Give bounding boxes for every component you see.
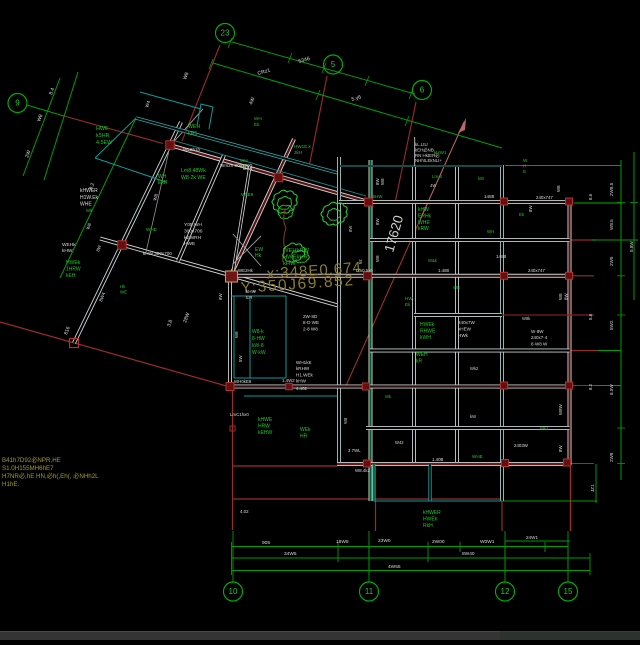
svg-text:W42: W42 — [395, 440, 404, 445]
svg-text:H1hE.: H1hE. — [2, 481, 19, 488]
svg-text:kEWRH: kEWRH — [184, 235, 202, 241]
svg-text:RkH: RkH — [423, 523, 433, 529]
svg-text:H7NR必,hE HN,必h(,Eh(, 必NHh2L: H7NR必,hE HN,必h(,Eh(, 必NHh2L — [2, 472, 99, 480]
svg-text:kRHW: kRHW — [296, 366, 310, 371]
svg-text:Hk: Hk — [120, 284, 126, 289]
svg-text:8W: 8W — [218, 293, 223, 300]
svg-text:LmC1hx0: LmC1hx0 — [230, 412, 249, 417]
svg-text:kEH必NB: kEH必NB — [415, 146, 434, 152]
svg-text:WH0kE8: WH0kE8 — [234, 379, 252, 384]
svg-text:4.402: 4.402 — [296, 386, 308, 391]
svg-text:kHW: kHW — [246, 289, 257, 294]
svg-text:Lm·8: Lm·8 — [432, 174, 443, 179]
svg-text:ERHk: ERHk — [418, 213, 432, 219]
svg-text:WH: WH — [254, 116, 262, 121]
svg-text:k5HR: k5HR — [96, 133, 110, 139]
svg-text:JZ1: JZ1 — [590, 484, 595, 492]
svg-text:1.488: 1.488 — [438, 268, 450, 273]
svg-text:HRW: HRW — [258, 424, 270, 430]
svg-text:1HRW: 1HRW — [66, 267, 81, 273]
svg-text:1488: 1488 — [496, 254, 507, 259]
svg-text:W8: W8 — [375, 255, 380, 262]
svg-text:1.4W2: 1.4W2 — [282, 378, 295, 383]
svg-text:WE: WE — [453, 285, 460, 290]
svg-text:Hk: Hk — [255, 253, 262, 259]
svg-text:kL.LtU: kL.LtU — [415, 142, 428, 147]
svg-text:kHWE: kHWE — [258, 417, 273, 423]
svg-text:HW: HW — [405, 296, 413, 301]
svg-text:W8.4k2: W8.4k2 — [355, 468, 370, 473]
svg-text:WHE: WHE — [146, 227, 157, 232]
svg-text:4W55: 4W55 — [388, 564, 401, 570]
svg-text:8W: 8W — [558, 445, 563, 452]
svg-text:HWE: HWE — [96, 126, 109, 132]
svg-text:300x700: 300x700 — [184, 228, 203, 234]
svg-text:8W: 8W — [348, 226, 353, 232]
svg-text:2W8: 2W8 — [609, 452, 614, 462]
svg-text:23W0: 23W0 — [378, 538, 391, 544]
svg-text:905: 905 — [262, 540, 270, 546]
svg-text:kHW1: kHW1 — [434, 150, 447, 155]
svg-text:ER: ER — [246, 295, 253, 300]
svg-text:23: 23 — [221, 29, 230, 38]
svg-text:Lm0.5x0: Lm0.5x0 — [356, 268, 373, 273]
svg-text:W&k: W&k — [428, 258, 438, 263]
svg-text:W8: W8 — [343, 417, 348, 424]
svg-text:HWEk: HWEk — [420, 322, 435, 328]
svg-text:W8: W8 — [380, 178, 385, 185]
svg-text:WkE8: WkE8 — [241, 192, 254, 197]
svg-text:NHhtLEkNLt+: NHhtLEkNLt+ — [415, 158, 442, 163]
svg-text:6: 6 — [420, 86, 425, 95]
svg-text:WEH: WEH — [416, 352, 428, 358]
svg-text:H: H — [523, 163, 526, 168]
svg-text:W8: W8 — [556, 185, 561, 192]
svg-text:kHW 300x700: kHW 300x700 — [143, 251, 172, 256]
svg-text:Lm8 48Wk: Lm8 48Wk — [181, 168, 206, 174]
svg-text:240x747: 240x747 — [528, 268, 545, 273]
svg-text:18W5: 18W5 — [336, 539, 349, 545]
svg-text:1488: 1488 — [484, 194, 495, 199]
svg-text:W8·2k WE: W8·2k WE — [181, 175, 206, 181]
svg-text:W0W1: W0W1 — [480, 539, 495, 545]
svg-text:W8: W8 — [234, 331, 239, 338]
svg-text:5.8: 5.8 — [588, 313, 593, 320]
svg-text:E: E — [523, 169, 526, 174]
svg-text:5: 5 — [331, 60, 336, 69]
svg-text:WHE: WHE — [80, 202, 92, 208]
svg-text:S1.0H155MH6hE7: S1.0H155MH6hE7 — [2, 465, 54, 472]
svg-text:WEHk: WEHk — [62, 242, 76, 248]
svg-text:HWEk: HWEk — [66, 260, 81, 266]
svg-text:11: 11 — [365, 587, 374, 596]
svg-text:HR: HR — [300, 433, 308, 439]
svg-text:3kH: 3kH — [294, 150, 302, 155]
svg-text:Y05.WH: Y05.WH — [184, 222, 202, 228]
svg-text:W·8W: W·8W — [531, 329, 544, 334]
svg-text:kW: kW — [470, 414, 476, 419]
svg-text:15: 15 — [564, 587, 573, 596]
svg-text:W: W — [523, 158, 528, 163]
svg-text:W:: W: — [358, 259, 363, 264]
svg-text:kHW: kHW — [62, 248, 73, 254]
svg-text:Ek: Ek — [254, 122, 260, 127]
svg-text:kR5: kR5 — [188, 131, 197, 137]
svg-text:2·8 W8: 2·8 W8 — [303, 326, 318, 331]
svg-text:RHWE: RHWE — [420, 329, 436, 335]
svg-text:W·kW: W·kW — [252, 350, 266, 356]
svg-text:4.5EW: 4.5EW — [96, 140, 113, 146]
svg-text:kWH: kWH — [420, 335, 431, 341]
svg-text:4.02: 4.02 — [240, 509, 249, 514]
svg-text:8·D WE: 8·D WE — [303, 320, 319, 325]
svg-text:8.2: 8.2 — [588, 383, 593, 390]
svg-text:2W5: 2W5 — [609, 256, 614, 266]
svg-text:kW·8: kW·8 — [252, 343, 264, 349]
svg-text:H1.WEk: H1.WEk — [296, 372, 314, 377]
svg-text:W8: W8 — [558, 293, 563, 300]
svg-text:3 7WL: 3 7WL — [348, 448, 361, 453]
svg-text:WE2Hk: WE2Hk — [238, 268, 254, 273]
svg-text:kHWER: kHWER — [423, 510, 441, 516]
svg-text:kW: kW — [478, 176, 484, 181]
svg-text:B41h7D92必NPR,HE: B41h7D92必NPR,HE — [2, 456, 61, 464]
svg-text:5.8W: 5.8W — [629, 241, 634, 252]
svg-text:34W5: 34W5 — [284, 551, 297, 557]
svg-text:kHW: kHW — [296, 379, 307, 384]
svg-text:kHW: kHW — [243, 166, 253, 171]
svg-text:W8.5: W8.5 — [609, 219, 614, 230]
svg-text:Wk2: Wk2 — [470, 366, 479, 371]
svg-text:8.5: 8.5 — [588, 193, 593, 200]
svg-text:WHE: WHE — [418, 220, 430, 226]
svg-text:5W: 5W — [238, 355, 243, 362]
svg-text:HWE: HWE — [184, 241, 195, 247]
svg-text:8W: 8W — [563, 293, 568, 300]
svg-text:W8·k: W8·k — [252, 329, 264, 335]
svg-text:H1W.Ek: H1W.Ek — [80, 195, 99, 201]
svg-text:8W40: 8W40 — [462, 551, 475, 557]
svg-text:EkR: EkR — [158, 180, 168, 186]
svg-text:Ek: Ek — [405, 302, 411, 307]
svg-text:WE: WE — [120, 290, 127, 295]
svg-text:9: 9 — [15, 99, 20, 108]
svg-text:WEH: WEH — [188, 124, 200, 130]
svg-text:8·W8 W: 8·W8 W — [531, 341, 548, 346]
svg-text:WH1kE: WH1kE — [296, 360, 312, 365]
svg-text:240x747: 240x747 — [536, 195, 553, 200]
svg-text:4W: 4W — [430, 183, 436, 188]
svg-text:W8k: W8k — [522, 316, 531, 321]
svg-text:kEH: kEH — [66, 273, 76, 279]
svg-text:kHW: kHW — [373, 194, 383, 199]
svg-text:kEHW: kEHW — [258, 430, 272, 436]
svg-text:2403W: 2403W — [514, 443, 529, 448]
svg-text:kHW: kHW — [418, 207, 429, 213]
svg-text:Wk: Wk — [86, 208, 93, 213]
svg-text:8W: 8W — [528, 205, 533, 212]
svg-text:240x7·4: 240x7·4 — [531, 335, 548, 340]
svg-text:12: 12 — [501, 587, 510, 596]
svg-text:240x7W: 240x7W — [458, 320, 476, 325]
svg-text:HWEk: HWEk — [423, 517, 438, 523]
svg-text:24W1: 24W1 — [526, 535, 538, 540]
svg-text:WH: WH — [158, 174, 167, 180]
svg-text:Ek: Ek — [519, 212, 525, 217]
svg-text:Wk: Wk — [385, 394, 392, 399]
svg-text:Wk1: Wk1 — [540, 426, 549, 431]
svg-text:kR: kR — [416, 358, 423, 364]
svg-text:HWk: HWk — [458, 333, 469, 338]
svg-text:2W·8D: 2W·8D — [303, 314, 318, 319]
svg-text:kRW: kRW — [418, 226, 429, 232]
svg-text:HW1E.k: HW1E.k — [294, 144, 312, 149]
svg-text:8W: 8W — [375, 218, 380, 225]
svg-text:2W00: 2W00 — [432, 539, 445, 545]
svg-text:WH: WH — [487, 229, 494, 234]
svg-text:8.5W: 8.5W — [609, 384, 614, 395]
svg-text:8·HW: 8·HW — [252, 336, 265, 342]
svg-text:kHEW: kHEW — [458, 326, 472, 331]
svg-text:5W2: 5W2 — [609, 320, 614, 330]
svg-text:W8W: W8W — [558, 403, 563, 415]
svg-text:WHE: WHE — [472, 454, 483, 459]
svg-text:1.40B: 1.40B — [432, 457, 444, 462]
svg-text:WEk: WEk — [300, 427, 311, 433]
svg-text:10: 10 — [229, 587, 238, 596]
svg-text:2W8.5: 2W8.5 — [609, 182, 614, 196]
svg-text:WL2h1h: WL2h1h — [183, 147, 201, 152]
